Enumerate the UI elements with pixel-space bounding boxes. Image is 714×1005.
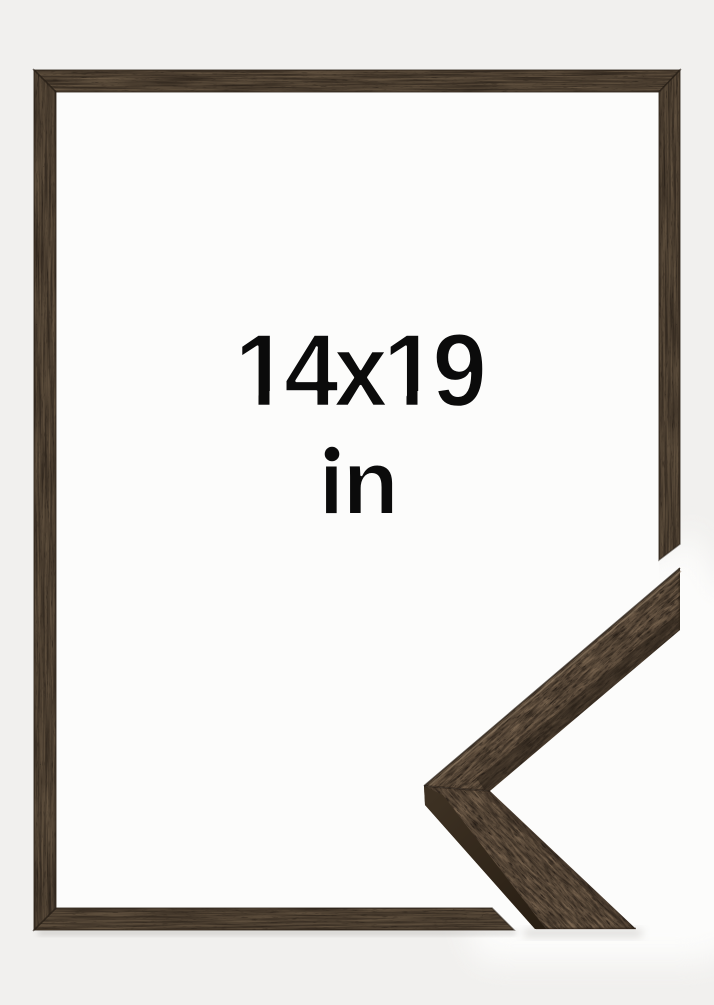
svg-text:14x19: 14x19	[234, 313, 483, 429]
